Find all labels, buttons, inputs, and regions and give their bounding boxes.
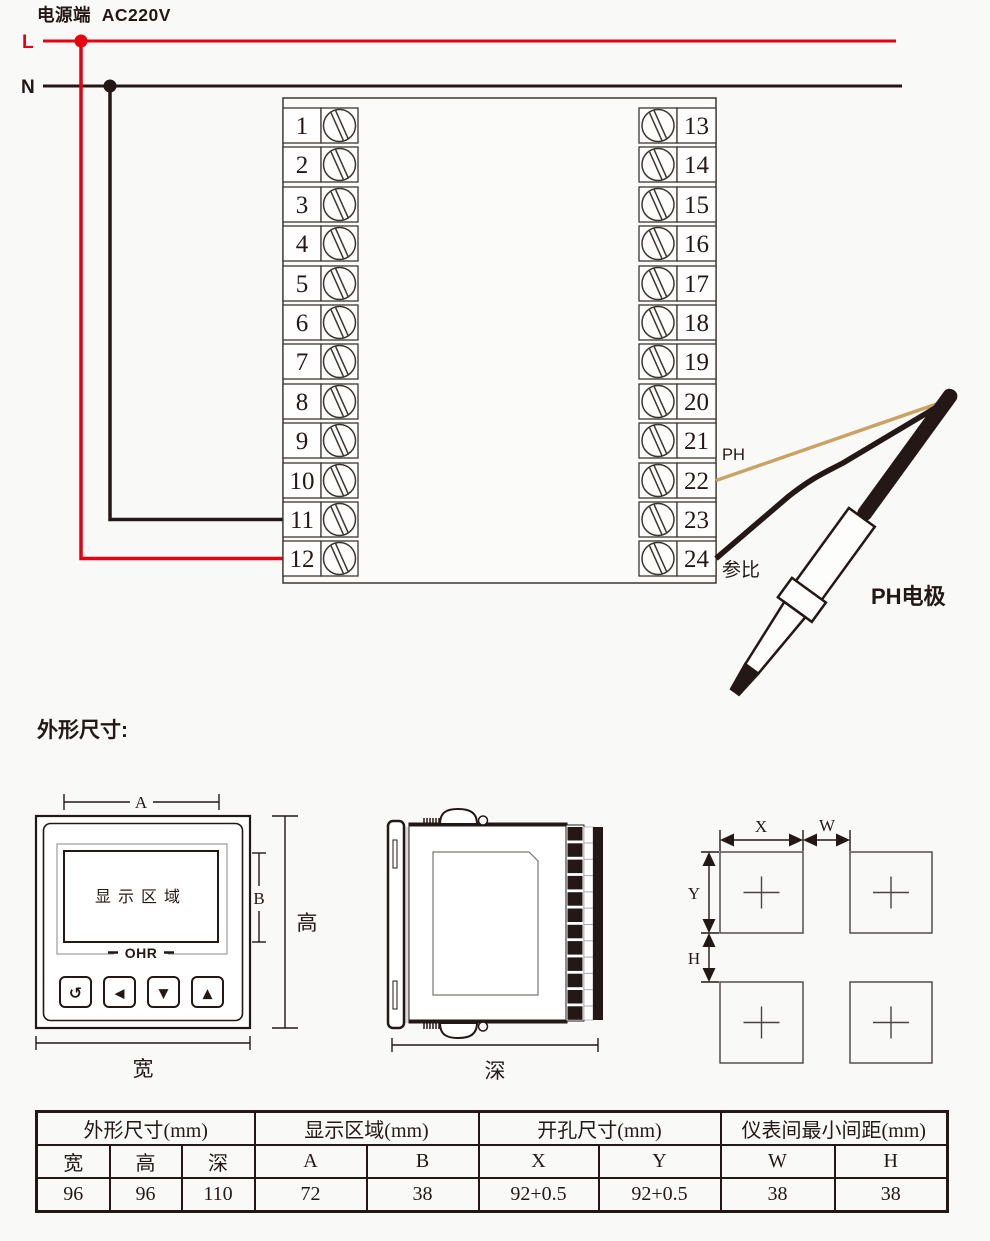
manual-page: { "power": { "title": "电源端 AC220V", "lin…: [0, 0, 990, 1241]
dim-width-label: 宽: [133, 1057, 154, 1081]
spec-table: 外形尺寸(mm) 显示区域(mm) 开孔尺寸(mm) 仪表间最小间距(mm) 宽…: [35, 1110, 949, 1213]
up-button-icon: ▲: [203, 987, 213, 1002]
terminal-row: 16: [639, 226, 716, 261]
spec-header: H: [835, 1145, 948, 1178]
spec-value: 96: [110, 1178, 182, 1212]
terminal-number: 7: [296, 349, 309, 376]
line-n-label: N: [21, 77, 35, 98]
terminal-row: 13: [639, 108, 716, 143]
dim-h-label: H: [688, 949, 700, 968]
terminal-row: 23: [639, 502, 716, 537]
spec-value: 38: [721, 1178, 835, 1212]
dim-y-label: Y: [688, 884, 700, 903]
ph-electrode-wiring: PH 参比 PH电极: [716, 378, 971, 705]
terminal-number: 16: [684, 231, 709, 258]
spec-value: 92+0.5: [479, 1178, 599, 1212]
terminal-number: 18: [684, 310, 709, 337]
terminal-row: 19: [639, 344, 716, 379]
spec-group-header-row: 外形尺寸(mm) 显示区域(mm) 开孔尺寸(mm) 仪表间最小间距(mm): [37, 1112, 948, 1146]
ph-wire-label: PH: [722, 446, 745, 464]
dim-b-label: B: [253, 889, 264, 908]
side-view-drawing: 深: [388, 809, 603, 1083]
terminal-number: 8: [296, 389, 309, 416]
terminal-row: 15: [639, 187, 716, 222]
spec-header: 高: [110, 1145, 182, 1178]
reference-wire-label: 参比: [722, 559, 760, 581]
terminal-row: 10: [283, 463, 358, 498]
dim-depth-label: 深: [485, 1059, 506, 1083]
terminal-number: 20: [684, 389, 709, 416]
terminal-row: 14: [639, 147, 716, 182]
spec-value: 96: [37, 1178, 110, 1212]
terminal-row: 8: [283, 384, 358, 419]
terminal-number: 10: [290, 468, 315, 495]
rear-terminal-strip: [566, 825, 603, 1021]
neutral-wire-to-terminal11: [110, 86, 284, 520]
spec-value: 38: [835, 1178, 948, 1212]
terminal-number: 21: [684, 428, 709, 455]
spec-header: X: [479, 1145, 599, 1178]
terminal-number: 9: [296, 428, 309, 455]
terminal-row: 4: [283, 226, 358, 261]
dim-x-label: X: [755, 817, 767, 836]
spec-value: 110: [182, 1178, 255, 1212]
terminal-number: 14: [684, 152, 710, 179]
spec-group-cutout: 开孔尺寸(mm): [479, 1112, 721, 1146]
terminal-row: 20: [639, 384, 716, 419]
panel-cutout-drawing: X W Y H: [688, 816, 932, 1063]
terminal-number: 12: [290, 546, 315, 573]
terminal-row: 9: [283, 423, 358, 458]
spec-value: 38: [367, 1178, 479, 1212]
display-area-label: 显示区域: [95, 888, 187, 906]
terminal-number: 3: [296, 192, 309, 219]
terminal-row: 11: [283, 502, 358, 537]
cycle-button-icon: ↺: [69, 984, 82, 1003]
front-view-drawing: 显示区域 OHR ↺ ◀ ▼ ▲ A B 高: [36, 793, 318, 1081]
left-button-icon: ◀: [115, 987, 125, 1002]
terminal-number: 6: [296, 310, 309, 337]
cutout-center-marks: [744, 877, 910, 1039]
terminal-row: 18: [639, 305, 716, 340]
dim-a-label: A: [135, 793, 148, 812]
terminal-number: 24: [684, 546, 710, 573]
electrode-label: PH电极: [871, 584, 947, 609]
terminal-number: 11: [290, 507, 314, 534]
terminal-row: 22: [639, 463, 716, 498]
spec-group-display: 显示区域(mm): [255, 1112, 479, 1146]
terminal-number: 17: [684, 271, 709, 298]
terminal-number: 2: [296, 152, 309, 179]
terminal-number: 22: [684, 468, 709, 495]
terminal-number: 5: [296, 271, 309, 298]
dim-w-label: W: [819, 816, 836, 835]
spec-header: B: [367, 1145, 479, 1178]
terminal-number: 19: [684, 349, 709, 376]
terminal-row: 7: [283, 344, 358, 379]
terminal-row: 12: [283, 541, 358, 576]
brand-logo: OHR: [125, 945, 158, 961]
terminal-row: 24: [639, 541, 716, 576]
dim-height-label: 高: [297, 911, 318, 935]
spec-header-row: 宽 高 深 A B X Y W H: [37, 1145, 948, 1178]
spec-group-outline: 外形尺寸(mm): [37, 1112, 255, 1146]
terminal-row: 2: [283, 147, 358, 182]
spec-header: 深: [182, 1145, 255, 1178]
terminal-number: 23: [684, 507, 709, 534]
spec-header: Y: [599, 1145, 721, 1178]
terminal-number: 13: [684, 113, 709, 140]
terminal-row: 5: [283, 266, 358, 301]
terminal-number: 15: [684, 192, 709, 219]
terminal-row: 1: [283, 108, 358, 143]
spec-value: 72: [255, 1178, 367, 1212]
terminal-row: 17: [639, 266, 716, 301]
terminal-number: 4: [296, 231, 309, 258]
wiring-and-dimension-diagram: L N 1 2 3 4 5 6 7 8 9 10 11 12 13 14 15 …: [0, 0, 990, 1241]
terminal-row: 21: [639, 423, 716, 458]
terminal-row: 6: [283, 305, 358, 340]
spec-header: W: [721, 1145, 835, 1178]
spec-group-spacing: 仪表间最小间距(mm): [721, 1112, 948, 1146]
terminal-row: 3: [283, 187, 358, 222]
spec-header: 宽: [37, 1145, 110, 1178]
ph-electrode-body: [717, 378, 971, 705]
mounting-clamp-bottom: [424, 1022, 488, 1038]
spec-header: A: [255, 1145, 367, 1178]
down-button-icon: ▼: [159, 987, 169, 1002]
spec-value-row: 96 96 110 72 38 92+0.5 92+0.5 38 38: [37, 1178, 948, 1212]
line-l-label: L: [22, 32, 34, 53]
spec-value: 92+0.5: [599, 1178, 721, 1212]
terminal-number: 1: [296, 113, 309, 140]
